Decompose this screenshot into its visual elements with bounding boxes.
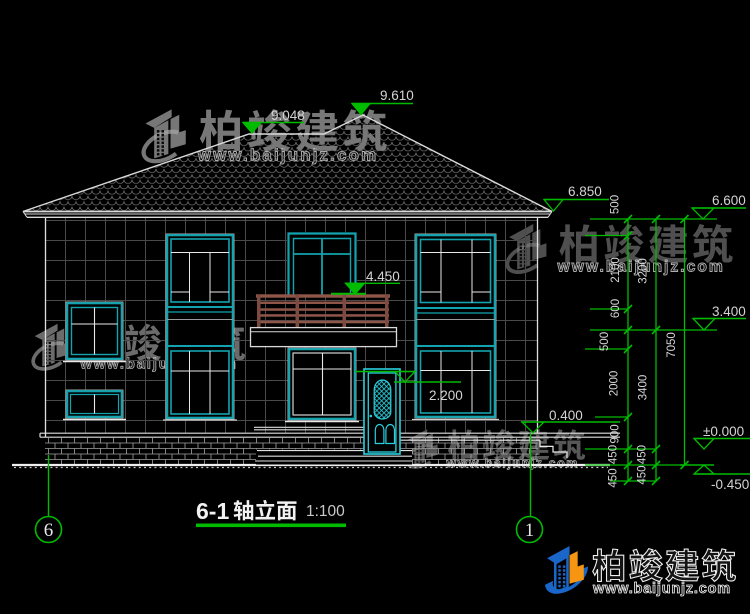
svg-text:1: 1 (525, 520, 535, 541)
svg-text:450: 450 (637, 465, 649, 484)
svg-text:500: 500 (610, 195, 622, 214)
svg-text:6: 6 (44, 520, 54, 541)
svg-text:www.baijunjz.com: www.baijunjz.com (592, 581, 731, 597)
svg-text:3200: 3200 (638, 258, 650, 284)
svg-text:2.200: 2.200 (429, 388, 463, 403)
svg-text:450: 450 (608, 445, 620, 464)
svg-text:7050: 7050 (666, 332, 678, 358)
svg-text:500: 500 (599, 332, 611, 351)
svg-text:4.450: 4.450 (366, 269, 400, 284)
svg-text:900: 900 (610, 424, 622, 443)
svg-text:±0.000: ±0.000 (703, 424, 744, 439)
svg-text:6-1: 6-1 (196, 498, 229, 524)
svg-text:9.048: 9.048 (271, 108, 305, 123)
svg-text:3400: 3400 (638, 375, 650, 401)
svg-text:-0.450: -0.450 (711, 477, 749, 492)
svg-text:600: 600 (610, 299, 622, 318)
svg-text:6.850: 6.850 (568, 184, 602, 199)
svg-text:9.610: 9.610 (380, 88, 414, 103)
svg-text:3.400: 3.400 (712, 304, 746, 319)
svg-text:450: 450 (608, 468, 620, 487)
svg-text:2100: 2100 (610, 257, 622, 283)
svg-text:1:100: 1:100 (306, 503, 345, 520)
svg-text:2000: 2000 (609, 371, 621, 397)
svg-text:450: 450 (637, 445, 649, 464)
svg-text:0.400: 0.400 (549, 408, 583, 423)
svg-text:6.600: 6.600 (712, 193, 746, 208)
